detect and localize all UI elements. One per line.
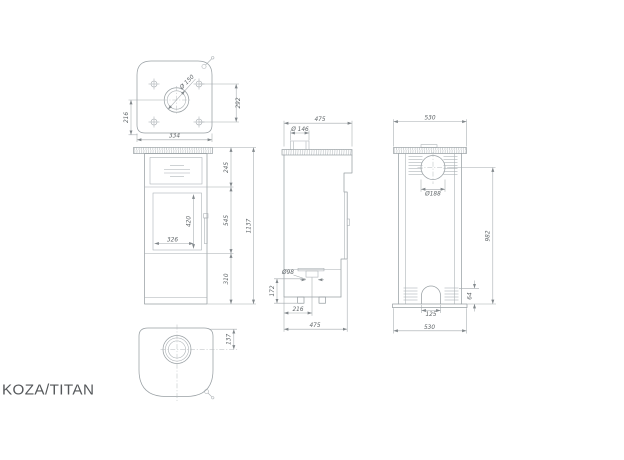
bottom-view-body [139,325,238,402]
dim-depth-left: 216 [124,112,130,123]
dim-arch-width: 125 [425,312,436,318]
foot-front [319,297,326,303]
model-title: KOZA/TITAN [2,382,94,399]
arch-opening [422,286,441,304]
top-plate-back [394,148,467,154]
dim-width-bottom: 530 [424,325,435,331]
dim-glass-width: 326 [167,237,178,243]
foot-rear [298,297,305,303]
bottom-view: 137 [139,325,238,402]
dim-outlet: Ø188 [424,191,441,198]
dim-outlet-center-height: 982 [486,230,492,241]
dim-air-inlet: Ø98 [281,269,294,276]
dim-glass-height: 420 [187,216,193,227]
front-view: 420 326 245 545 310 1137 [134,148,257,305]
dim-depth-top: 475 [314,117,325,123]
top-plate [134,148,213,154]
flue-collar-side [291,141,310,150]
louvers-top-left [409,157,423,175]
louvers-top-right [444,157,458,175]
door-handle [204,214,208,244]
dim-flue-offset: 137 [226,333,232,344]
dim-door-section: 545 [224,215,230,226]
front-profile [341,155,352,297]
front-view-dimensions [155,148,257,305]
top-view-body [137,57,214,134]
dim-inlet-height: 172 [270,285,276,296]
top-view: Ø 150 216 292 334 [124,57,242,143]
base-plinth [393,304,468,308]
stove-body [145,154,208,305]
dim-collar: Ø 146 [290,126,309,133]
dim-inlet-offset: 216 [292,307,303,313]
back-view-body [393,145,468,308]
technical-drawing: Ø 150 216 292 334 [0,0,624,460]
vent-panel [150,158,202,185]
dim-upper-section: 245 [224,162,230,173]
louvers-bottom-right [445,288,459,300]
dim-total-height: 1137 [247,218,253,233]
vent-slots [164,166,190,177]
top-plate-side [282,150,352,156]
dim-hole-spacing: 292 [236,97,242,108]
bottom-view-dimensions [211,329,238,349]
dim-base-section: 310 [224,273,230,284]
dim-top-width: 334 [169,134,180,140]
drawing-sheet: Ø 150 216 292 334 [0,0,624,460]
dim-width-top: 530 [424,116,435,122]
dim-depth-bottom: 475 [309,323,320,329]
side-view: 475 Ø 146 Ø98 172 216 475 [270,117,352,332]
front-view-body [134,148,213,305]
back-view: 530 Ø188 64 982 125 530 [393,116,497,334]
corner-feature [202,57,214,69]
dim-arch-height: 64 [467,292,473,300]
edge-feature [205,390,215,399]
